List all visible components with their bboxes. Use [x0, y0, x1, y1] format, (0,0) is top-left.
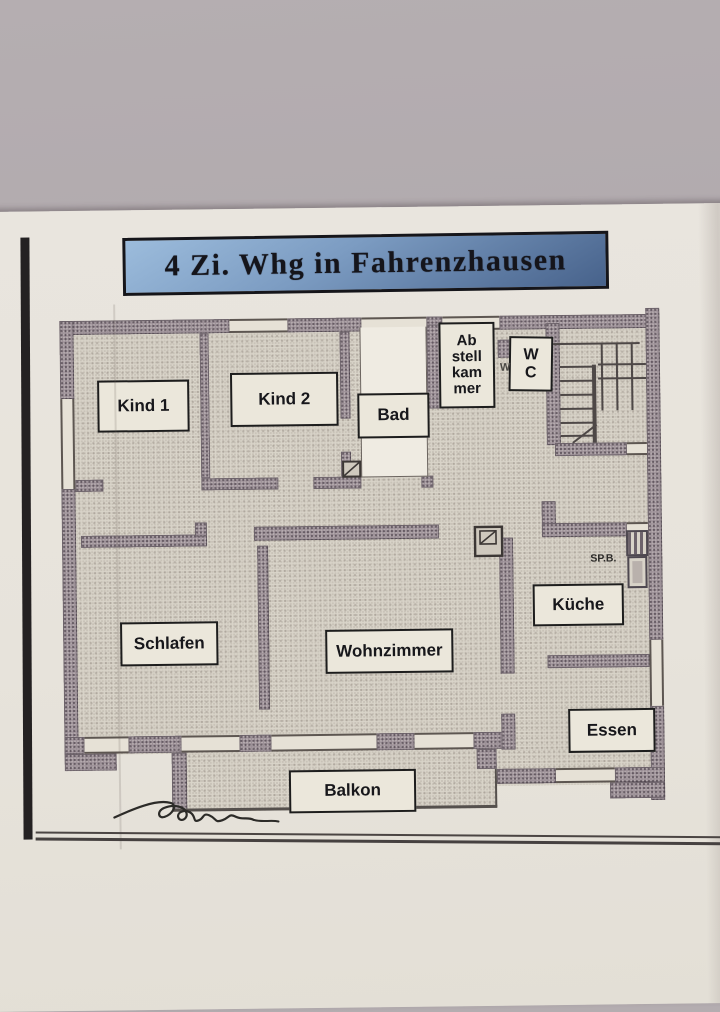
w-partial-annotation: W — [500, 362, 511, 374]
balcony-side-wall — [477, 749, 497, 769]
chimney-box — [342, 460, 361, 477]
black-edge-bar — [20, 238, 32, 840]
signature-squiggle — [112, 789, 342, 834]
room-label-text: Kind 1 — [117, 397, 169, 416]
window — [181, 735, 239, 753]
wall-segment — [59, 321, 74, 399]
room-label-text: Bad — [377, 406, 409, 425]
wall-segment — [64, 737, 84, 754]
room-label-text: W — [523, 347, 538, 364]
room-label-text: mer — [453, 381, 481, 398]
page-title: 4 Zi. Whg in Fahrenzhausen — [164, 243, 567, 283]
room-label-text: Ab — [457, 333, 477, 349]
room-label-kueche: Küche — [533, 583, 625, 626]
sp-b-annotation: SP.B. — [590, 552, 616, 564]
wall-kitchen-top — [542, 522, 627, 537]
window — [556, 767, 615, 783]
room-label-kind2: Kind 2 — [230, 372, 339, 427]
room-label-kind1: Kind 1 — [97, 380, 190, 433]
staircase — [552, 340, 649, 449]
room-label-essen: Essen — [568, 708, 656, 753]
window — [60, 399, 75, 489]
room-label-wc: W C — [509, 336, 554, 392]
window — [649, 640, 664, 706]
wall-segment — [421, 476, 433, 488]
wall-kitchen-dining — [547, 654, 649, 668]
wall-segment — [201, 477, 278, 490]
room-label-text: Küche — [552, 595, 604, 614]
paper-sheet: 4 Zi. Whg in Fahrenzhausen — [0, 203, 720, 1012]
wall-segment — [195, 522, 207, 536]
balcony-door — [271, 733, 376, 751]
wall-livingroom-top — [254, 525, 439, 541]
wall-segment — [287, 317, 361, 332]
room-label-wohnzimmer: Wohnzimmer — [325, 628, 454, 674]
wall-segment — [376, 733, 414, 750]
wall-segment — [498, 340, 510, 358]
wall-segment — [499, 314, 659, 330]
ground-line — [36, 831, 720, 848]
wall-bedroom-livingroom — [257, 546, 270, 710]
window — [84, 736, 128, 754]
wall-segment — [615, 767, 665, 783]
wall-livingroom-dining — [501, 714, 515, 750]
wall-kind1-kind2 — [199, 333, 210, 478]
sp-b-shaft-box — [627, 556, 647, 588]
wall-segment — [75, 480, 103, 492]
window — [414, 732, 473, 750]
wall-segment — [65, 753, 117, 771]
room-label-schlafen: Schlafen — [120, 621, 219, 666]
room-label-text: C — [525, 364, 537, 381]
wall-segment — [610, 782, 665, 799]
room-label-abstellkammer: Ab stell kam mer — [438, 322, 495, 409]
room-label-text: kam — [452, 365, 482, 382]
room-label-text: Essen — [587, 721, 637, 740]
wall-bedroom-top — [81, 534, 207, 548]
photo-of-floorplan-page: { "title_banner": { "text": "4 Zi. Whg i… — [0, 0, 720, 960]
sp-b-shaft-hatch — [626, 530, 648, 556]
title-banner: 4 Zi. Whg in Fahrenzhausen — [122, 231, 609, 296]
wall-segment — [239, 735, 271, 752]
window — [229, 318, 287, 333]
room-label-text: stell — [452, 349, 482, 366]
wall-segment — [497, 768, 556, 784]
chimney-box — [474, 526, 503, 557]
room-label-text: Schlafen — [134, 634, 205, 653]
room-label-bad: Bad — [357, 393, 430, 439]
room-label-text: Kind 2 — [258, 390, 310, 409]
wall-livingroom-kitchen — [499, 538, 515, 674]
wall-segment — [313, 476, 361, 489]
floorplan-drawing: Kind 1 Kind 2 Bad Ab stell kam mer W C S… — [59, 308, 665, 821]
wall-segment — [645, 308, 663, 640]
wall-kind2-bad — [339, 332, 350, 419]
wall-segment — [128, 736, 181, 754]
room-label-text: Wohnzimmer — [336, 641, 443, 661]
paper-crease — [698, 203, 720, 1003]
